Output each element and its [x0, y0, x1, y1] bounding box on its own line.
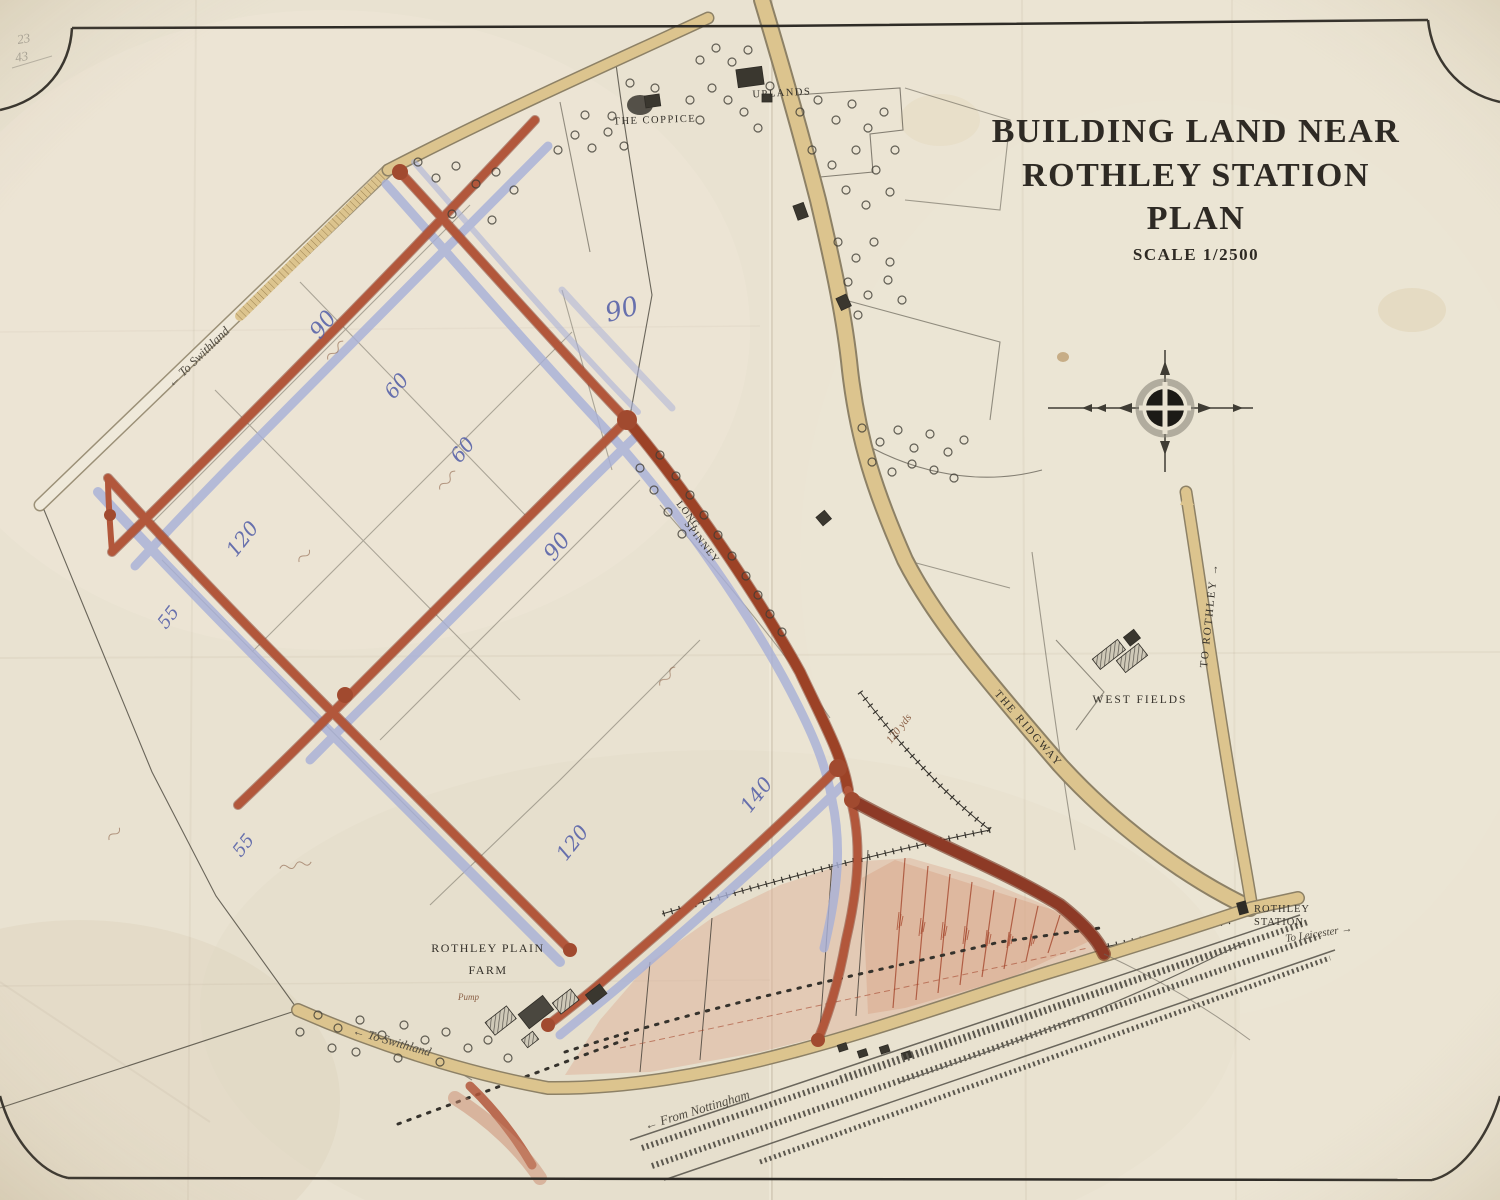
- label-farm-2: FARM: [468, 963, 507, 977]
- label-station-2: STATION: [1254, 917, 1304, 928]
- label-west-fields: WEST FIELDS: [1093, 694, 1188, 706]
- title-scale: SCALE 1/2500: [1133, 245, 1259, 264]
- rothley-plan-map: BUILDING LAND NEAR ROTHLEY STATION PLAN …: [0, 0, 1500, 1200]
- label-pump: Pump: [457, 992, 479, 1002]
- title-line-2: ROTHLEY STATION: [1022, 157, 1370, 194]
- label-farm-1: ROTHLEY PLAIN: [431, 941, 544, 955]
- label-station-1: ROTHLEY: [1254, 904, 1310, 915]
- map-canvas: BUILDING LAND NEAR ROTHLEY STATION PLAN …: [0, 0, 1500, 1200]
- title-line-1: BUILDING LAND NEAR: [992, 113, 1401, 150]
- title-line-3: PLAN: [1147, 200, 1246, 237]
